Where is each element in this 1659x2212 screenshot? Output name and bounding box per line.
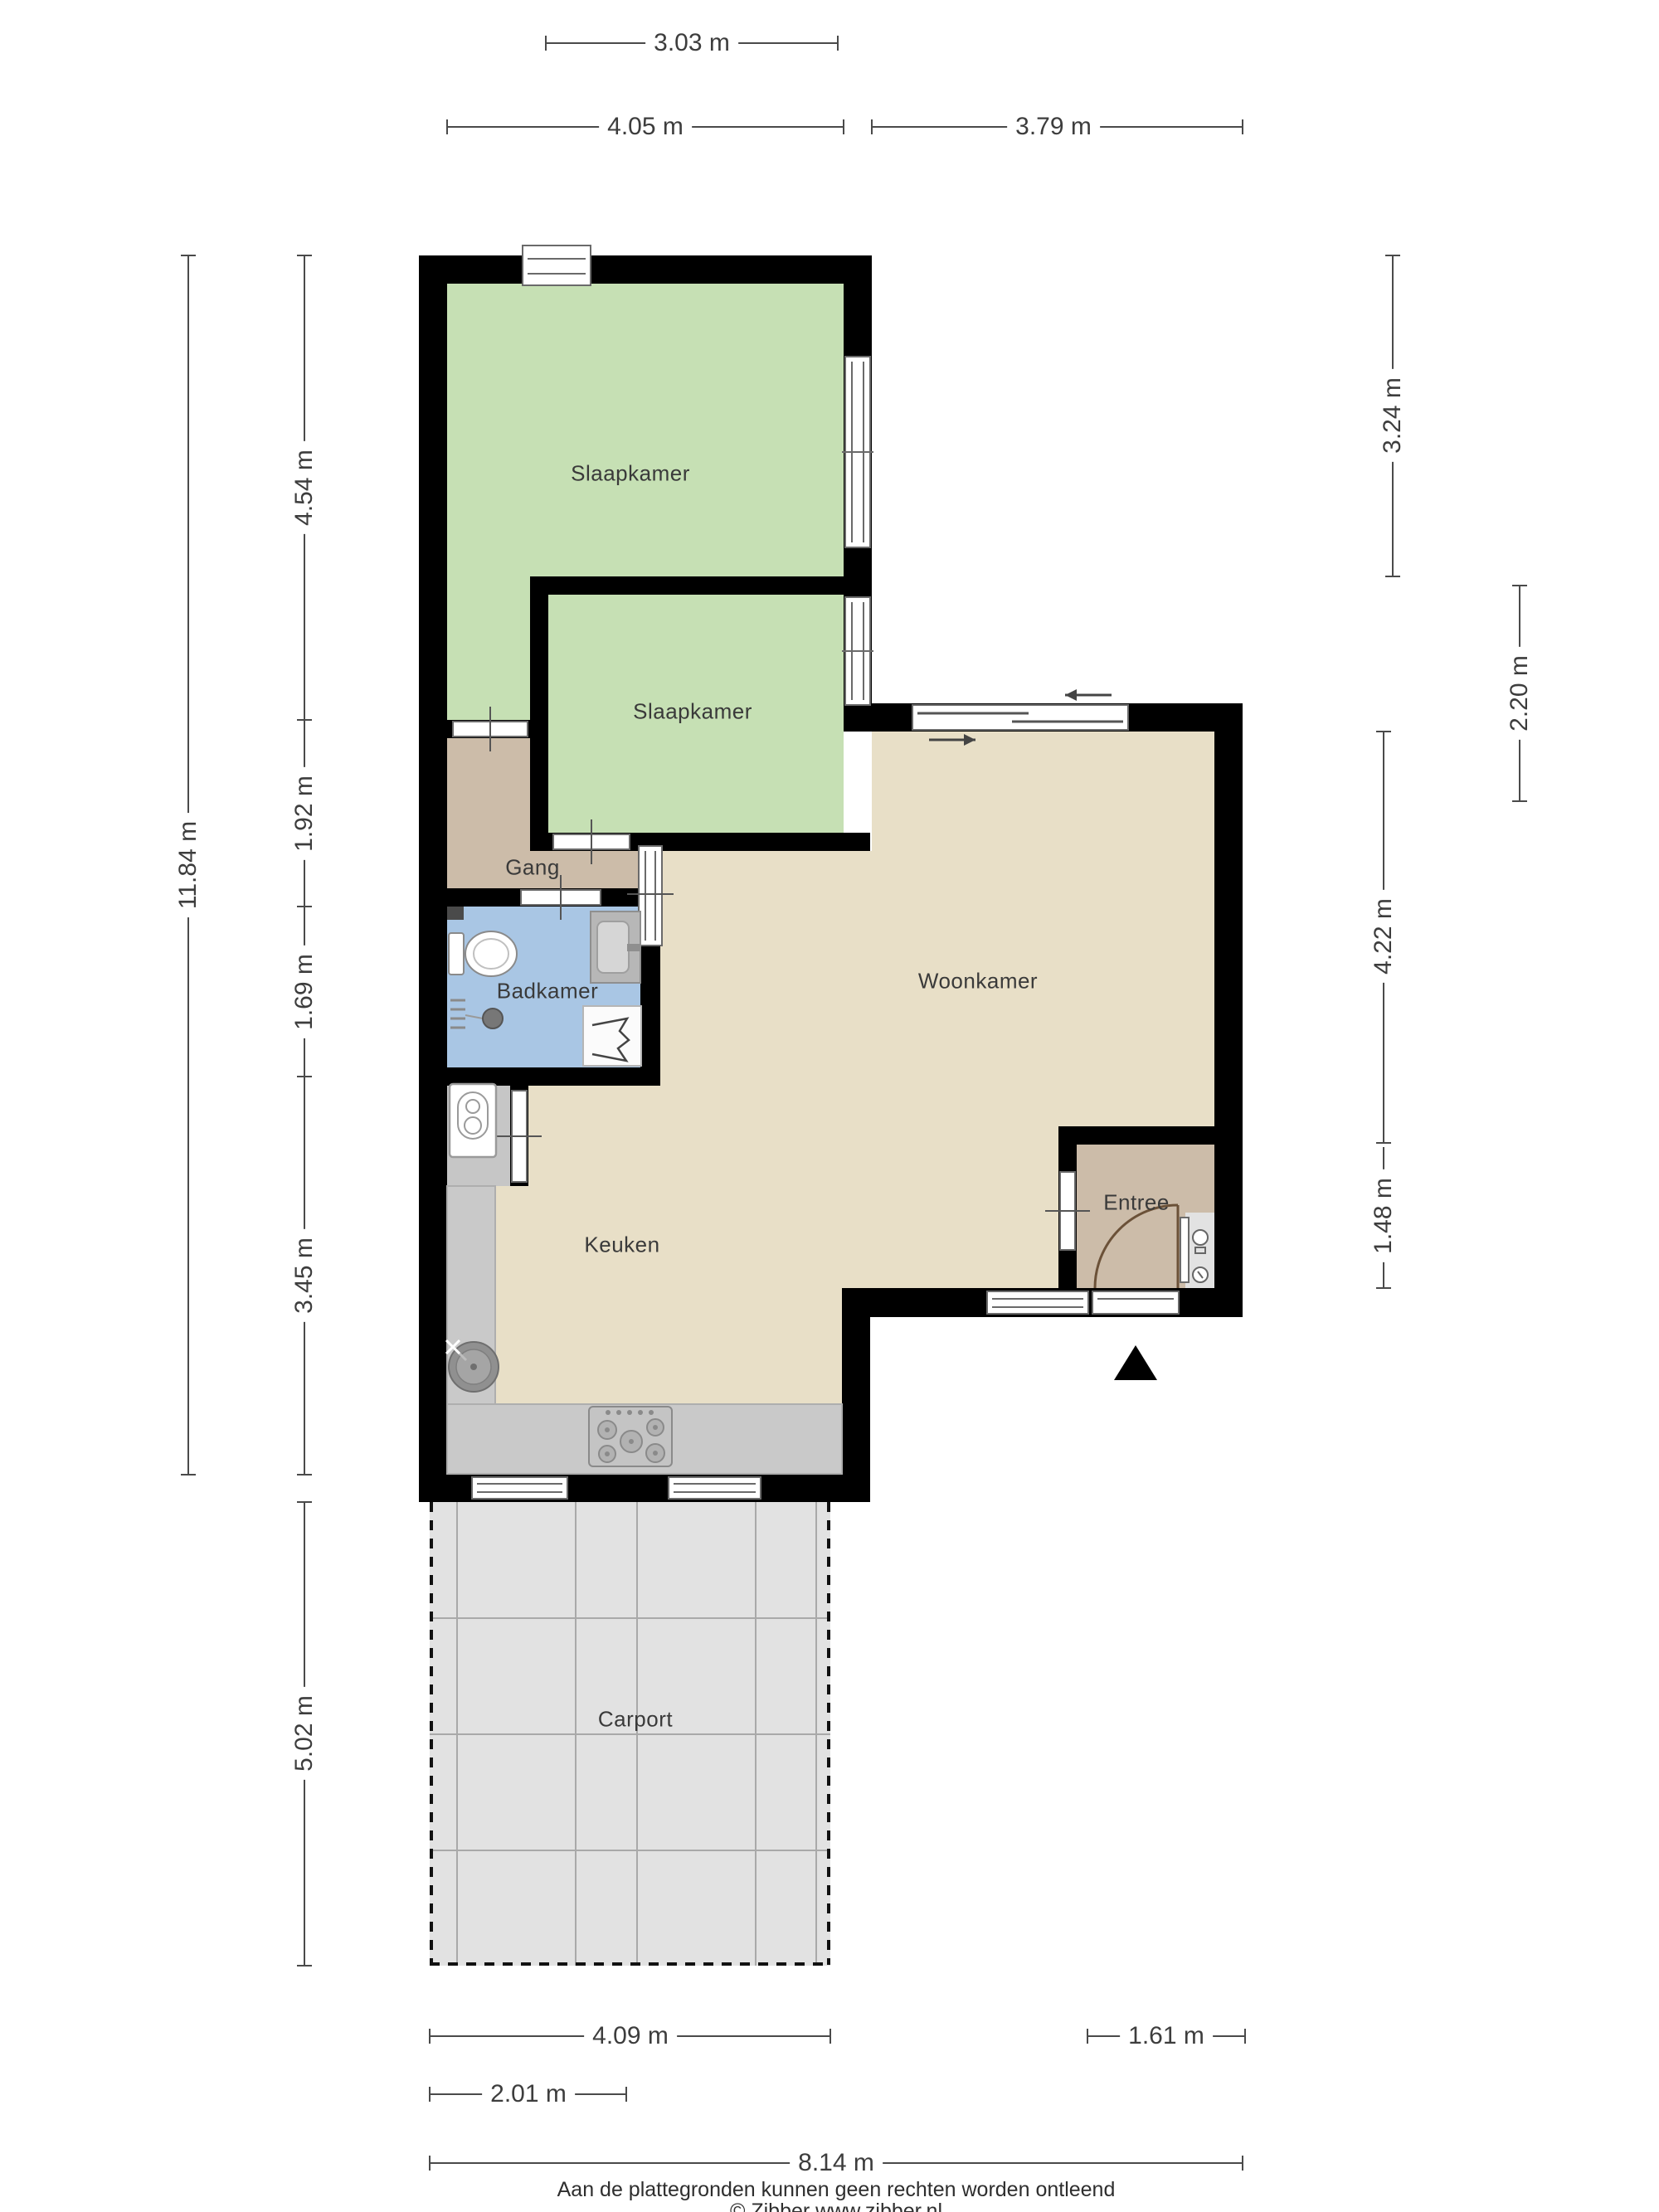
room-label-woonkamer: Woonkamer: [918, 969, 1038, 994]
toilet-icon: [449, 931, 517, 976]
dim-top-3-79: 3.79 m: [1007, 112, 1100, 142]
dim-bottom-8-14: 8.14 m: [790, 2148, 883, 2178]
room-label-entree: Entree: [1103, 1190, 1170, 1216]
shower-icon: [583, 1006, 641, 1066]
dim-left-4-54: 4.54 m: [289, 441, 319, 534]
dim-right-4-22: 4.22 m: [1369, 890, 1399, 983]
dim-right-3-24: 3.24 m: [1378, 369, 1408, 462]
dim-left-3-45: 3.45 m: [289, 1229, 319, 1322]
room-label-slaapkamer-1: Slaapkamer: [571, 461, 690, 487]
floorplan-drawing: [0, 0, 1659, 2212]
dim-bottom-1-61: 1.61 m: [1120, 2021, 1213, 2051]
dim-right-2-20: 2.20 m: [1505, 647, 1535, 740]
washbasin-icon: [591, 912, 640, 983]
room-label-slaapkamer-2: Slaapkamer: [633, 699, 752, 725]
dim-bottom-2-01: 2.01 m: [482, 2079, 575, 2109]
window-keuken-2: [669, 1477, 761, 1499]
window-bedroom1-right: [842, 357, 873, 547]
washing-machine-icon: [450, 1084, 496, 1157]
carport-area: [430, 1502, 830, 1966]
dim-left-11-84: 11.84 m: [173, 813, 203, 917]
window-woonkamer-bottom: [987, 1291, 1088, 1314]
dim-top-4-05: 4.05 m: [599, 112, 692, 142]
dim-top-3-03: 3.03 m: [645, 28, 738, 58]
dim-left-5-02: 5.02 m: [289, 1687, 319, 1780]
dim-left-1-69: 1.69 m: [289, 946, 319, 1038]
stove-icon: [589, 1407, 672, 1466]
room-label-gang: Gang: [505, 855, 560, 881]
window-bedroom1-top: [523, 246, 591, 285]
dim-right-1-48: 1.48 m: [1369, 1169, 1399, 1262]
window-keuken-1: [472, 1477, 567, 1499]
room-label-carport: Carport: [598, 1707, 673, 1733]
room-label-keuken: Keuken: [584, 1232, 659, 1258]
dim-bottom-4-09: 4.09 m: [584, 2021, 677, 2051]
footer-credit: © Zibber www.zibber.nl: [430, 2200, 1243, 2212]
footer-disclaimer: Aan de plattegronden kunnen geen rechten…: [430, 2178, 1243, 2202]
floorplan-page: Slaapkamer Slaapkamer Gang Badkamer Woon…: [0, 0, 1659, 2212]
room-label-badkamer: Badkamer: [497, 979, 599, 1004]
north-arrow-icon: [1114, 1345, 1157, 1380]
window-bedroom2-right: [842, 597, 873, 705]
dim-left-1-92: 1.92 m: [289, 767, 319, 860]
door-meterkast: [1180, 1218, 1189, 1282]
